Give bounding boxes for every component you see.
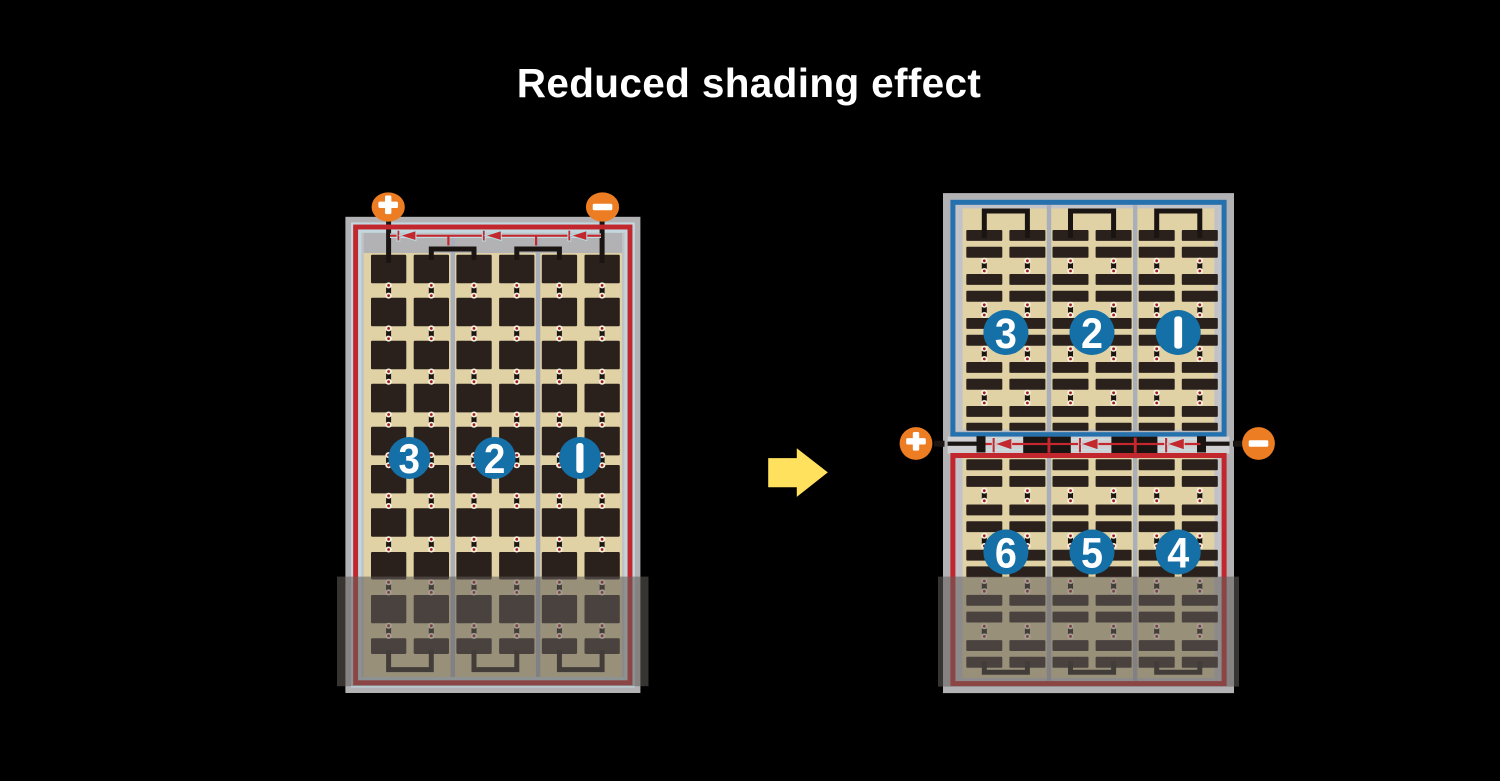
svg-text:3: 3 xyxy=(995,309,1017,357)
svg-text:3: 3 xyxy=(399,434,420,482)
svg-text:6: 6 xyxy=(995,529,1017,577)
svg-text:2: 2 xyxy=(1081,309,1103,357)
svg-text:5: 5 xyxy=(1081,529,1103,577)
svg-text:Reduced shading effect: Reduced shading effect xyxy=(517,60,982,106)
svg-text:4: 4 xyxy=(1167,529,1189,577)
svg-text:2: 2 xyxy=(484,434,505,482)
